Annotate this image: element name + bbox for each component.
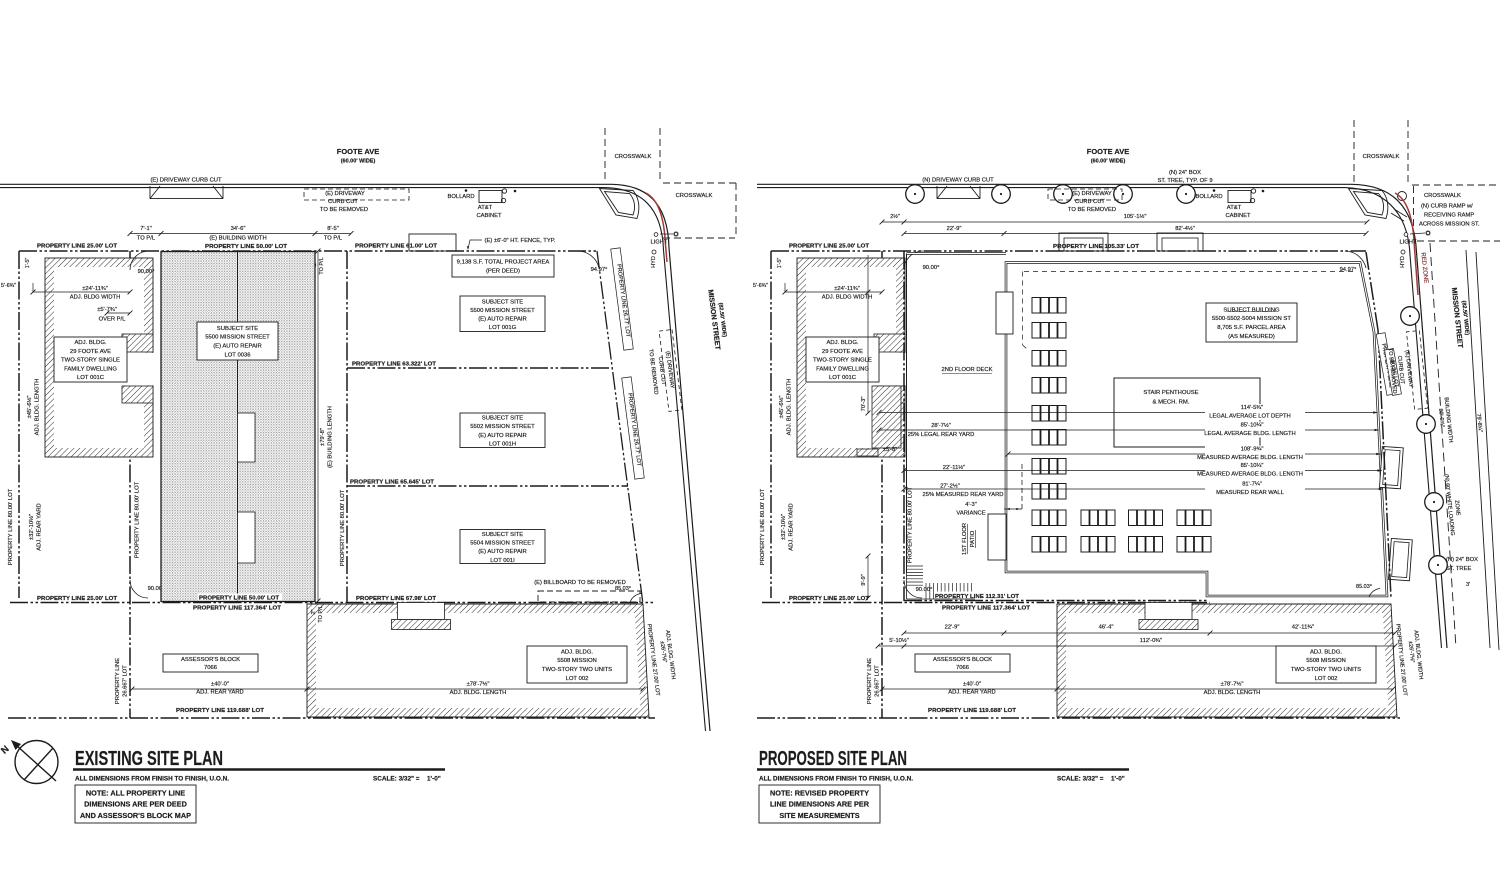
svg-text:±40'-0": ±40'-0" (211, 682, 229, 688)
svg-text:HYD: HYD (651, 256, 657, 268)
svg-text:AND ASSESSOR'S BLOCK MAP: AND ASSESSOR'S BLOCK MAP (80, 811, 191, 820)
svg-text:(PER DEED): (PER DEED) (486, 268, 520, 274)
svg-text:105'-1½": 105'-1½" (1124, 213, 1147, 220)
svg-text:PROPOSED SITE PLAN: PROPOSED SITE PLAN (759, 748, 907, 770)
svg-text:PROPERTY LINE 112.31' LOT: PROPERTY LINE 112.31' LOT (935, 594, 1019, 600)
svg-text:TO P/L: TO P/L (324, 236, 343, 242)
svg-text:±24'-11¾": ±24'-11¾" (834, 286, 860, 292)
svg-text:TWO-STORY SINGLE: TWO-STORY SINGLE (813, 358, 872, 364)
svg-text:(E) AUTO REPAIR: (E) AUTO REPAIR (478, 549, 527, 555)
svg-text:HYD: HYD (1400, 256, 1406, 268)
svg-text:LEGAL AVERAGE LOT DEPTH: LEGAL AVERAGE LOT DEPTH (1209, 414, 1290, 420)
svg-text:MEASURED AVERAGE BLDG. LENGTH: MEASURED AVERAGE BLDG. LENGTH (1197, 472, 1303, 478)
svg-text:OVER P/L: OVER P/L (99, 317, 127, 323)
svg-text:(E) DRIVEWAY CURB CUT: (E) DRIVEWAY CURB CUT (150, 178, 222, 184)
svg-text:CURB CUT: CURB CUT (1075, 199, 1105, 205)
svg-text:7066: 7066 (956, 665, 970, 671)
svg-text:TO BE REMOVED: TO BE REMOVED (1068, 207, 1116, 213)
svg-text:SUBJECT SITE: SUBJECT SITE (482, 300, 524, 306)
svg-text:(N) 24" BOX: (N) 24" BOX (1169, 170, 1201, 176)
svg-text:±40'-0": ±40'-0" (963, 682, 981, 688)
svg-text:LOT 001G: LOT 001G (489, 325, 517, 331)
svg-text:(E) AUTO REPAIR: (E) AUTO REPAIR (213, 343, 262, 349)
svg-text:FOOTE AVE: FOOTE AVE (1087, 147, 1130, 156)
svg-text:85.03°: 85.03° (615, 586, 631, 592)
svg-text:PROPERTY LINE 80.00' LOT: PROPERTY LINE 80.00' LOT (908, 486, 914, 563)
svg-text:FAMILY DWELLING: FAMILY DWELLING (816, 366, 869, 372)
svg-text:CABINET: CABINET (1225, 213, 1251, 219)
svg-text:70'-3": 70'-3" (861, 397, 867, 412)
svg-text:22'-9": 22'-9" (947, 226, 962, 232)
svg-text:PROPERTY LINE 117.364' LOT: PROPERTY LINE 117.364' LOT (193, 606, 281, 612)
svg-text:PATIO: PATIO (970, 530, 976, 547)
svg-text:LOT 001H: LOT 001H (489, 442, 516, 448)
svg-text:90.00°: 90.00° (916, 587, 933, 593)
svg-text:PROPERTY LINE 63.322' LOT: PROPERTY LINE 63.322' LOT (352, 362, 436, 368)
svg-text:ADJ. BLDG.: ADJ. BLDG. (826, 340, 858, 346)
svg-text:5'-6¾": 5'-6¾" (1, 283, 16, 289)
svg-text:AT&T: AT&T (478, 205, 493, 211)
svg-text:5502 MISSION STREET: 5502 MISSION STREET (470, 424, 535, 430)
svg-text:ADJ. REAR YARD: ADJ. REAR YARD (196, 690, 243, 696)
svg-text:±32'-10½": ±32'-10½" (28, 514, 35, 540)
svg-text:±5'-7¾": ±5'-7¾" (97, 307, 117, 313)
svg-text:LOT 0036: LOT 0036 (224, 352, 251, 358)
svg-text:±5'-8": ±5'-8" (883, 447, 897, 453)
svg-text:(N) 24" BOX: (N) 24" BOX (1446, 557, 1478, 563)
svg-text:ADJ. BLDG.: ADJ. BLDG. (561, 649, 593, 655)
svg-text:PROPERTY LINE 119.688' LOT: PROPERTY LINE 119.688' LOT (928, 708, 1016, 714)
svg-text:46'-4": 46'-4" (1099, 625, 1114, 631)
svg-text:SCALE: 3/32" =: SCALE: 3/32" = (373, 776, 420, 783)
svg-text:(60.00' WIDE): (60.00' WIDE) (341, 159, 376, 165)
svg-text:±45'-6½": ±45'-6½" (26, 396, 33, 419)
svg-text:±78'-7½": ±78'-7½" (467, 681, 490, 688)
svg-text:±45'-6½": ±45'-6½" (778, 396, 785, 419)
svg-text:SUBJECT SITE: SUBJECT SITE (482, 416, 524, 422)
svg-text:PROPERTY LINE 65.645' LOT: PROPERTY LINE 65.645' LOT (350, 480, 434, 486)
svg-text:LINE DIMENSIONS ARE PER: LINE DIMENSIONS ARE PER (770, 800, 870, 809)
svg-text:8,705 S.F. PARCEL AREA: 8,705 S.F. PARCEL AREA (1217, 325, 1285, 331)
svg-text:BOLLARD: BOLLARD (447, 194, 474, 200)
svg-text:8'-5": 8'-5" (327, 226, 339, 232)
svg-text:PROPERTY LINE 25.00' LOT: PROPERTY LINE 25.00' LOT (37, 244, 117, 250)
svg-text:PROPERTY LINE 105.33' LOT: PROPERTY LINE 105.33' LOT (1053, 244, 1139, 250)
svg-text:±79'-8": ±79'-8" (320, 428, 326, 446)
svg-text:EXISTING SITE PLAN: EXISTING SITE PLAN (75, 748, 223, 770)
svg-text:LOT 001I: LOT 001I (490, 558, 515, 564)
svg-text:PROPERTY LINE 80.00' LOT: PROPERTY LINE 80.00' LOT (760, 488, 766, 565)
svg-text:TWO-STORY SINGLE: TWO-STORY SINGLE (61, 358, 120, 364)
svg-text:(E) DRIVEWAY: (E) DRIVEWAY (325, 191, 365, 197)
svg-text:PROPERTY LINE: PROPERTY LINE (115, 658, 121, 704)
svg-text:±32'-10½": ±32'-10½" (780, 514, 787, 540)
svg-text:34'-6": 34'-6" (231, 226, 246, 232)
svg-text:85'-10¼": 85'-10¼" (1241, 463, 1264, 469)
svg-text:ADJ. REAR YARD: ADJ. REAR YARD (948, 690, 995, 696)
svg-text:90.00°: 90.00° (923, 265, 940, 271)
svg-text:LIGHT: LIGHT (650, 240, 668, 246)
svg-text:42'-11¾": 42'-11¾" (1292, 625, 1314, 631)
svg-text:ACROSS MISSION ST.: ACROSS MISSION ST. (1419, 222, 1480, 228)
svg-text:94.97°: 94.97° (591, 267, 608, 273)
svg-text:(E) BUILDING LENGTH: (E) BUILDING LENGTH (328, 406, 334, 468)
svg-text:22'-11½": 22'-11½" (943, 464, 965, 471)
svg-text:5504 MISSION STREET: 5504 MISSION STREET (470, 541, 535, 547)
svg-text:FOOTE AVE: FOOTE AVE (337, 147, 380, 156)
svg-text:4'-3": 4'-3" (965, 502, 977, 508)
svg-text:114'-5¾": 114'-5¾" (1241, 405, 1263, 411)
svg-text:PROPERTY LINE 61.00' LOT: PROPERTY LINE 61.00' LOT (355, 244, 437, 250)
svg-text:PROPERTY LINE 117.364' LOT: PROPERTY LINE 117.364' LOT (942, 606, 1030, 612)
svg-text:5500 MISSION STREET: 5500 MISSION STREET (205, 335, 270, 341)
svg-text:LEGAL AVERAGE BLDG. LENGTH: LEGAL AVERAGE BLDG. LENGTH (1204, 431, 1296, 437)
svg-text:CROSSWALK: CROSSWALK (676, 193, 713, 199)
svg-text:ALL DIMENSIONS FROM FINISH TO: ALL DIMENSIONS FROM FINISH TO FINISH, U.… (75, 776, 229, 783)
svg-text:ASSESSOR'S BLOCK: ASSESSOR'S BLOCK (181, 657, 240, 663)
svg-text:TO P/L: TO P/L (318, 605, 324, 622)
svg-text:ASSESSOR'S BLOCK: ASSESSOR'S BLOCK (933, 657, 992, 663)
svg-text:3': 3' (1466, 582, 1470, 588)
svg-text:TO P/L: TO P/L (319, 257, 325, 274)
svg-text:26.667' LOT: 26.667' LOT (875, 665, 881, 697)
svg-text:7066: 7066 (204, 665, 218, 671)
svg-text:5500-5502-5004 MISSION ST: 5500-5502-5004 MISSION ST (1212, 316, 1291, 322)
svg-text:2": 2" (311, 609, 317, 614)
svg-text:9,138 S.F. TOTAL PROJECT AREA: 9,138 S.F. TOTAL PROJECT AREA (457, 260, 550, 266)
svg-text:MEASURED REAR WALL: MEASURED REAR WALL (1216, 490, 1285, 496)
svg-text:ADJ. REAR YARD: ADJ. REAR YARD (37, 503, 43, 550)
svg-text:PROPERTY LINE 67.98' LOT: PROPERTY LINE 67.98' LOT (356, 596, 436, 602)
svg-text:PROPERTY LINE 50.00' LOT: PROPERTY LINE 50.00' LOT (205, 244, 287, 250)
svg-text:STAIR PENTHOUSE: STAIR PENTHOUSE (1143, 390, 1198, 396)
svg-text:±24'-11¾": ±24'-11¾" (82, 286, 108, 292)
svg-text:LIGHT: LIGHT (1399, 240, 1417, 246)
svg-text:VARIANCE: VARIANCE (956, 511, 985, 517)
svg-text:TWO-STORY TWO UNITS: TWO-STORY TWO UNITS (1291, 667, 1361, 673)
svg-text:SITE MEASUREMENTS: SITE MEASUREMENTS (779, 811, 859, 820)
svg-text:1ST FLOOR: 1ST FLOOR (962, 523, 968, 555)
svg-text:LOT 002: LOT 002 (566, 676, 589, 682)
svg-text:NOTE: ALL PROPERTY LINE: NOTE: ALL PROPERTY LINE (86, 788, 185, 797)
svg-text:CROSSWALK: CROSSWALK (1363, 154, 1400, 160)
svg-text:2½": 2½" (890, 213, 900, 220)
svg-text:DIMENSIONS ARE PER DEED: DIMENSIONS ARE PER DEED (84, 800, 187, 809)
svg-text:TWO-STORY TWO UNITS: TWO-STORY TWO UNITS (542, 667, 612, 673)
svg-text:SCALE: 3/32" =: SCALE: 3/32" = (1057, 776, 1104, 783)
svg-text:PROPERTY LINE: PROPERTY LINE (867, 658, 873, 704)
svg-text:1'-0": 1'-0" (427, 776, 441, 783)
svg-text:2ND FLOOR DECK: 2ND FLOOR DECK (942, 367, 993, 373)
svg-text:NOTE: REVISED PROPERTY: NOTE: REVISED PROPERTY (770, 788, 869, 797)
svg-text:85.03°: 85.03° (1356, 584, 1372, 590)
svg-text:112'-0¾": 112'-0¾" (1140, 638, 1162, 644)
svg-text:ST. TREE, TYP. OF 9: ST. TREE, TYP. OF 9 (1157, 178, 1212, 184)
svg-text:PROPERTY LINE 80.00' LOT: PROPERTY LINE 80.00' LOT (340, 489, 346, 566)
svg-text:1'-5": 1'-5" (777, 258, 783, 269)
svg-text:SUBJECT SITE: SUBJECT SITE (217, 326, 259, 332)
svg-text:ADJ. BLDG. LENGTH: ADJ. BLDG. LENGTH (450, 690, 507, 696)
svg-text:94.97°: 94.97° (1340, 267, 1357, 273)
svg-text:(E) AUTO REPAIR: (E) AUTO REPAIR (478, 433, 527, 439)
svg-text:5508 MISSION: 5508 MISSION (557, 658, 597, 664)
svg-text:CROSSWALK: CROSSWALK (615, 154, 652, 160)
svg-text:ADJ. BLDG WIDTH: ADJ. BLDG WIDTH (822, 295, 873, 301)
svg-text:1'-5": 1'-5" (25, 258, 31, 269)
svg-text:ADJ. BLDG. LENGTH: ADJ. BLDG. LENGTH (1204, 690, 1261, 696)
svg-text:(N) CURB RAMP w/: (N) CURB RAMP w/ (1421, 204, 1473, 210)
svg-text:PROPERTY LINE 50.00' LOT: PROPERTY LINE 50.00' LOT (199, 596, 279, 602)
svg-text:(E) AUTO REPAIR: (E) AUTO REPAIR (478, 317, 527, 323)
svg-text:82'-4½": 82'-4½" (1175, 225, 1195, 232)
svg-text:PROPERTY LINE 119.688' LOT: PROPERTY LINE 119.688' LOT (176, 708, 264, 714)
svg-text:& MECH. RM.: & MECH. RM. (1153, 400, 1190, 406)
svg-text:ALL DIMENSIONS FROM FINISH TO: ALL DIMENSIONS FROM FINISH TO FINISH, U.… (759, 776, 913, 783)
svg-text:(E) BILLBOARD TO BE REMOVED: (E) BILLBOARD TO BE REMOVED (534, 580, 626, 586)
svg-text:ADJ. BLDG.: ADJ. BLDG. (1310, 649, 1342, 655)
svg-text:CURB CUT: CURB CUT (328, 199, 358, 205)
svg-text:ST. TREE: ST. TREE (1446, 566, 1471, 572)
svg-text:SUBJECT SITE: SUBJECT SITE (482, 532, 524, 538)
svg-text:ADJ. BLDG.: ADJ. BLDG. (74, 340, 106, 346)
svg-text:28'-7½": 28'-7½" (931, 422, 951, 429)
svg-text:PROPERTY LINE 25.00' LOT: PROPERTY LINE 25.00' LOT (789, 244, 869, 250)
svg-text:CABINET: CABINET (476, 213, 502, 219)
svg-text:81'-7¼": 81'-7¼" (1242, 482, 1262, 488)
svg-text:(N) DRIVEWAY CURB CUT: (N) DRIVEWAY CURB CUT (922, 178, 994, 184)
svg-text:29 FOOTE AVE: 29 FOOTE AVE (70, 349, 111, 355)
svg-text:25% LEGAL REAR YARD: 25% LEGAL REAR YARD (908, 432, 975, 438)
svg-text:29 FOOTE AVE: 29 FOOTE AVE (822, 349, 863, 355)
svg-text:TO P/L: TO P/L (137, 236, 156, 242)
svg-text:LOT 001C: LOT 001C (829, 375, 857, 381)
svg-text:5500 MISSION STREET: 5500 MISSION STREET (470, 308, 535, 314)
svg-text:(E) BUILDING WIDTH: (E) BUILDING WIDTH (209, 236, 266, 242)
svg-text:26.667' LOT: 26.667' LOT (123, 665, 129, 697)
svg-text:9'-9": 9'-9" (861, 574, 867, 586)
svg-text:LOT 002: LOT 002 (1315, 676, 1338, 682)
svg-text:85'-10¼": 85'-10¼" (1241, 423, 1264, 429)
svg-text:RECEIVING RAMP: RECEIVING RAMP (1424, 213, 1474, 219)
svg-text:AT&T: AT&T (1227, 205, 1242, 211)
svg-text:(60.00' WIDE): (60.00' WIDE) (1091, 159, 1126, 165)
svg-text:1'-0": 1'-0" (1111, 776, 1125, 783)
svg-text:ADJ. REAR YARD: ADJ. REAR YARD (789, 503, 795, 550)
svg-text:5508 MISSION: 5508 MISSION (1306, 658, 1346, 664)
svg-text:ADJ. BLDG. LENGTH: ADJ. BLDG. LENGTH (35, 379, 41, 436)
svg-text:LOT 001C: LOT 001C (77, 375, 105, 381)
svg-text:BOLLARD: BOLLARD (1195, 194, 1222, 200)
svg-text:(E) DRIVEWAY: (E) DRIVEWAY (1072, 191, 1112, 197)
svg-text:FAMILY DWELLING: FAMILY DWELLING (64, 366, 117, 372)
svg-text:CROSSWALK: CROSSWALK (1424, 193, 1461, 199)
svg-text:PROPERTY LINE 80.00' LOT: PROPERTY LINE 80.00' LOT (8, 488, 14, 565)
svg-text:90.00°: 90.00° (138, 269, 155, 275)
svg-text:5'-10½": 5'-10½" (889, 637, 909, 644)
svg-text:SUBJECT BUILDING: SUBJECT BUILDING (1223, 307, 1280, 313)
svg-text:22'-9": 22'-9" (945, 625, 960, 631)
svg-text:MEASURED AVERAGE BLDG. LENGTH: MEASURED AVERAGE BLDG. LENGTH (1197, 455, 1303, 461)
svg-text:(AS MEASURED): (AS MEASURED) (1228, 334, 1275, 340)
svg-text:108'-9¾": 108'-9¾" (1241, 447, 1264, 453)
svg-text:PROPERTY LINE 25.00' LOT: PROPERTY LINE 25.00' LOT (789, 596, 869, 602)
svg-text:ADJ. BLDG WIDTH: ADJ. BLDG WIDTH (70, 295, 121, 301)
svg-text:±78'-7½": ±78'-7½" (1221, 681, 1244, 688)
svg-text:PROPERTY LINE 80.00' LOT: PROPERTY LINE 80.00' LOT (135, 481, 141, 558)
svg-text:PROPERTY LINE 25.00' LOT: PROPERTY LINE 25.00' LOT (37, 596, 117, 602)
svg-text:25% MEASURED REAR YARD: 25% MEASURED REAR YARD (923, 492, 1004, 498)
svg-text:27'-2½": 27'-2½" (940, 483, 960, 490)
svg-text:TO BE REMOVED: TO BE REMOVED (320, 207, 368, 213)
svg-text:5'-6¾": 5'-6¾" (753, 283, 768, 289)
svg-text:(E) ±6'-0" HT. FENCE, TYP.: (E) ±6'-0" HT. FENCE, TYP. (485, 238, 556, 244)
svg-text:7'-1": 7'-1" (140, 226, 152, 232)
svg-text:ADJ. BLDG. LENGTH: ADJ. BLDG. LENGTH (787, 379, 793, 436)
